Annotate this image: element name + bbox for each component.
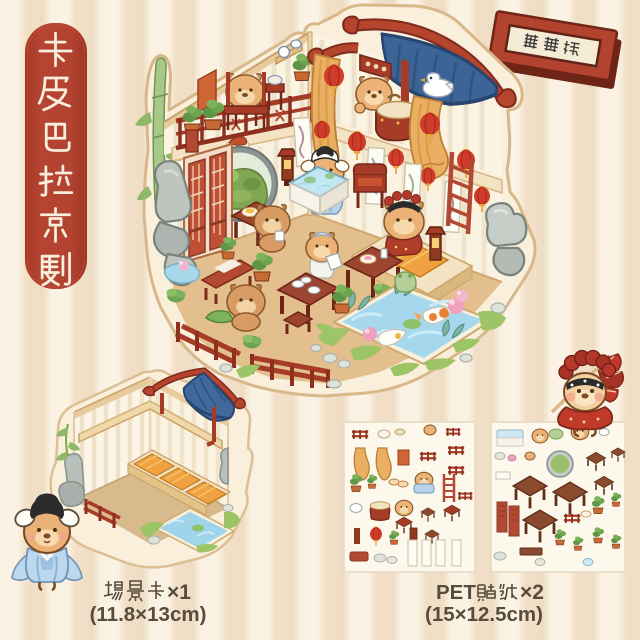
svg-text:(11.8×13cm): (11.8×13cm) <box>90 603 207 626</box>
svg-text:×2: ×2 <box>520 581 544 604</box>
svg-text:PET: PET <box>436 581 476 604</box>
svg-text:(15×12.5cm): (15×12.5cm) <box>425 603 543 626</box>
svg-text:×1: ×1 <box>167 581 191 604</box>
